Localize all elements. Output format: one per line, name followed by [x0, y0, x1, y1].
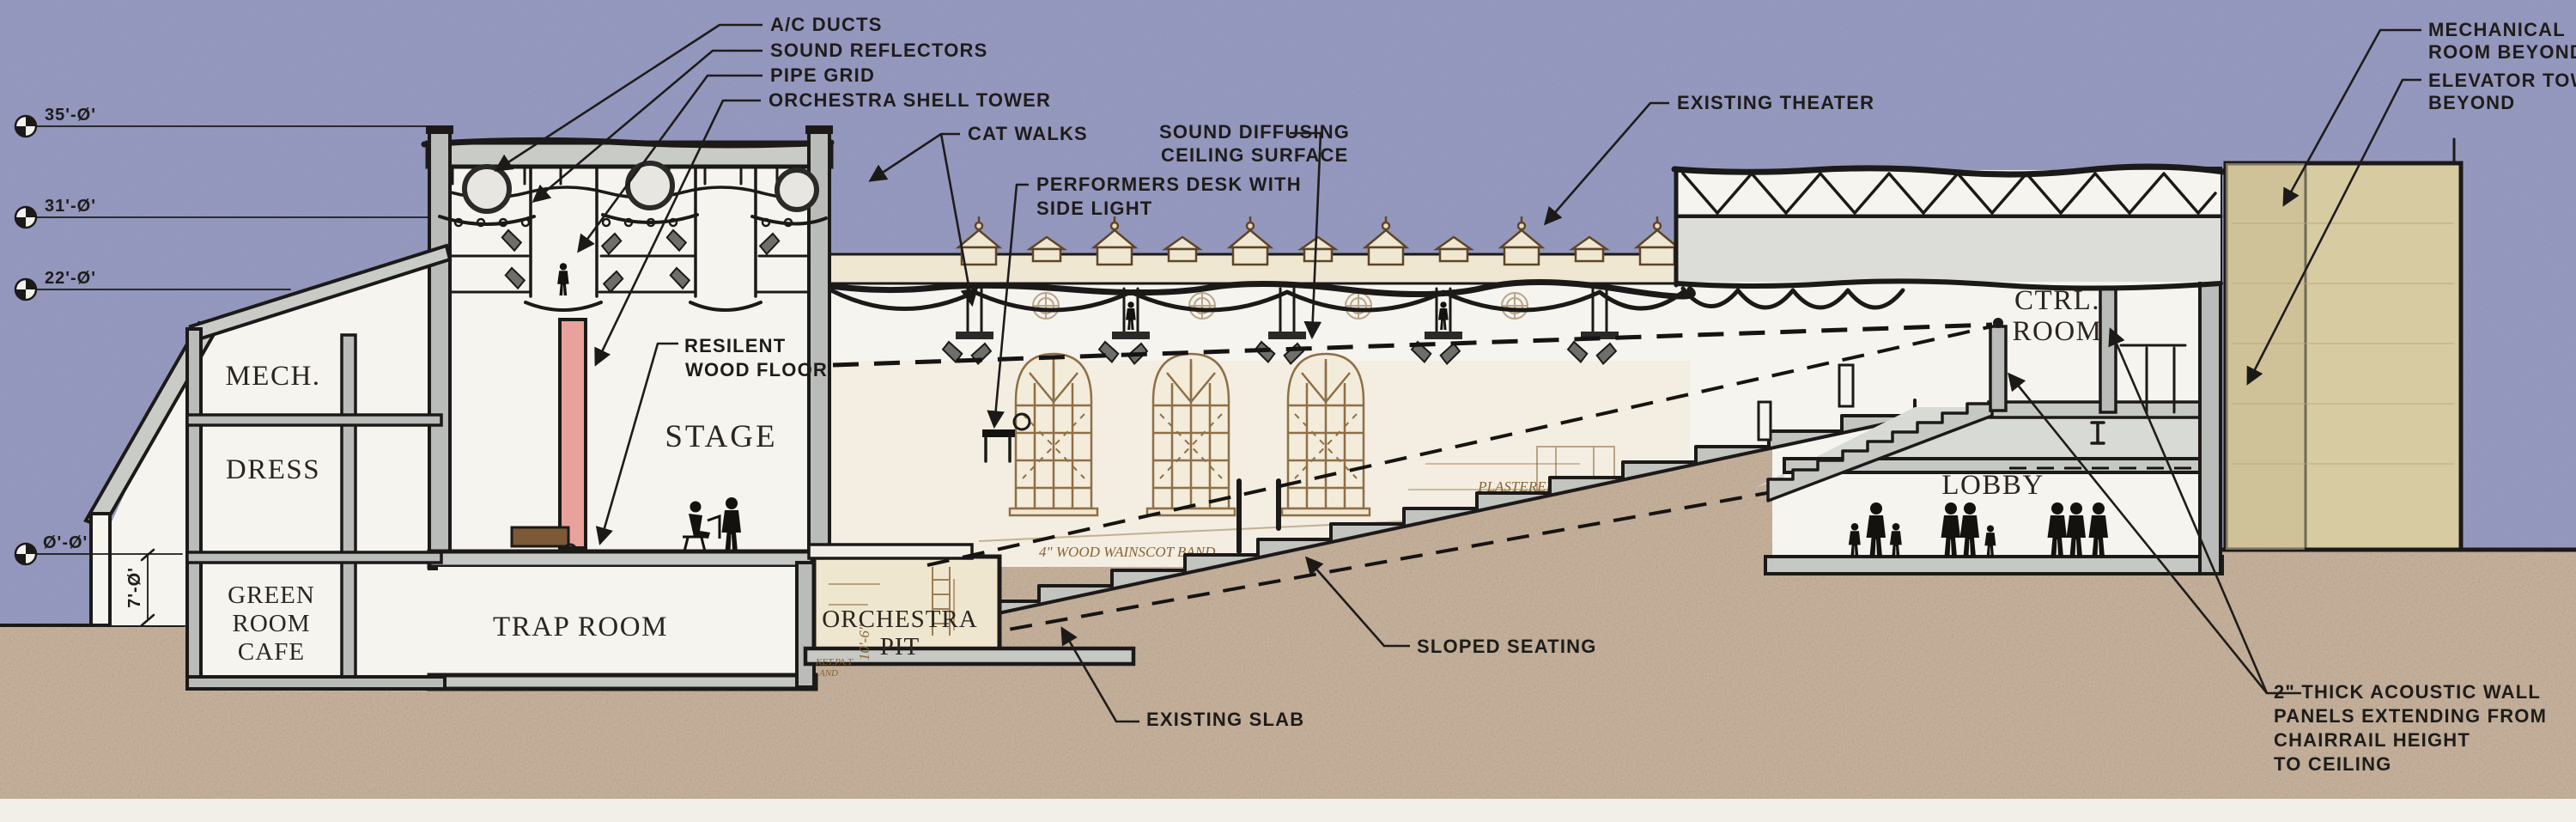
- label-existing-theater: EXISTING THEATER: [1677, 92, 1874, 113]
- label-sound-diffusing-1: SOUND DIFFUSING: [1159, 121, 1350, 143]
- label-resilient-2: WOOD FLOOR: [685, 359, 828, 381]
- orchestra-shell-tower-element: [560, 320, 586, 548]
- piano: [512, 527, 568, 546]
- label-existing-slab: EXISTING SLAB: [1146, 709, 1304, 730]
- label-ac-ducts: A/C DUCTS: [770, 14, 883, 35]
- label-elevator-tower-2: BEYOND: [2428, 92, 2515, 113]
- page-edge: [0, 799, 2576, 822]
- room-orchestra-2: PIT: [880, 633, 920, 661]
- label-resilient-1: RESILENT: [684, 335, 786, 356]
- mechanical-room-beyond-block: [2226, 139, 2461, 550]
- elevation-0: Ø'-Ø': [43, 533, 88, 552]
- room-mech: MECH.: [225, 361, 320, 392]
- room-lobby: LOBBY: [1941, 470, 2044, 501]
- elevation-22: 22'-Ø': [45, 269, 96, 288]
- room-stage: STAGE: [665, 419, 777, 454]
- architectural-section-drawing: PLASTERED RAIL'G 4" WOOD WAINSCOT BAND.: [0, 0, 2576, 822]
- label-acoustic-3: CHAIRRAIL HEIGHT: [2274, 729, 2470, 751]
- label-sound-reflectors: SOUND REFLECTORS: [770, 40, 987, 61]
- label-acoustic-4: TO CEILING: [2274, 753, 2392, 775]
- room-ctrl-1: CTRL.: [2014, 285, 2100, 316]
- label-elevator-tower-1: ELEVATOR TOWER: [2428, 70, 2576, 91]
- sightline-focus-dot: [1993, 318, 2003, 328]
- elevation-31: 31'-Ø': [45, 197, 96, 216]
- dimension-7ft: 7'-Ø': [125, 567, 144, 608]
- label-pipe-grid: PIPE GRID: [770, 64, 875, 86]
- room-trap: TRAP ROOM: [493, 612, 668, 642]
- room-green-3: CAFE: [238, 638, 305, 666]
- label-sound-diffusing-2: CEILING SURFACE: [1161, 144, 1348, 166]
- label-sloped-seating: SLOPED SEATING: [1417, 636, 1597, 657]
- label-orchestra-shell-tower: ORCHESTRA SHELL TOWER: [769, 89, 1051, 111]
- room-green-2: ROOM: [232, 610, 310, 637]
- label-cat-walks: CAT WALKS: [968, 123, 1088, 144]
- room-green-1: GREEN: [228, 581, 315, 609]
- elevation-35: 35'-Ø': [45, 106, 96, 125]
- label-performers-desk-2: SIDE LIGHT: [1036, 198, 1152, 219]
- existing-fragment-1: KET.PA.T: [815, 657, 854, 667]
- label-mechanical-room-2: ROOM BEYOND: [2428, 41, 2576, 63]
- label-performers-desk-1: PERFORMERS DESK WITH: [1036, 174, 1302, 195]
- room-dress: DRESS: [226, 454, 320, 485]
- existing-fragment-2: AND: [818, 668, 838, 679]
- label-acoustic-1: 2" THICK ACOUSTIC WALL: [2274, 681, 2541, 703]
- label-mechanical-room-1: MECHANICAL: [2428, 19, 2566, 40]
- room-ctrl-2: ROOM: [2012, 316, 2102, 347]
- label-acoustic-2: PANELS EXTENDING FROM: [2274, 705, 2547, 727]
- room-orchestra-1: ORCHESTRA: [822, 606, 977, 633]
